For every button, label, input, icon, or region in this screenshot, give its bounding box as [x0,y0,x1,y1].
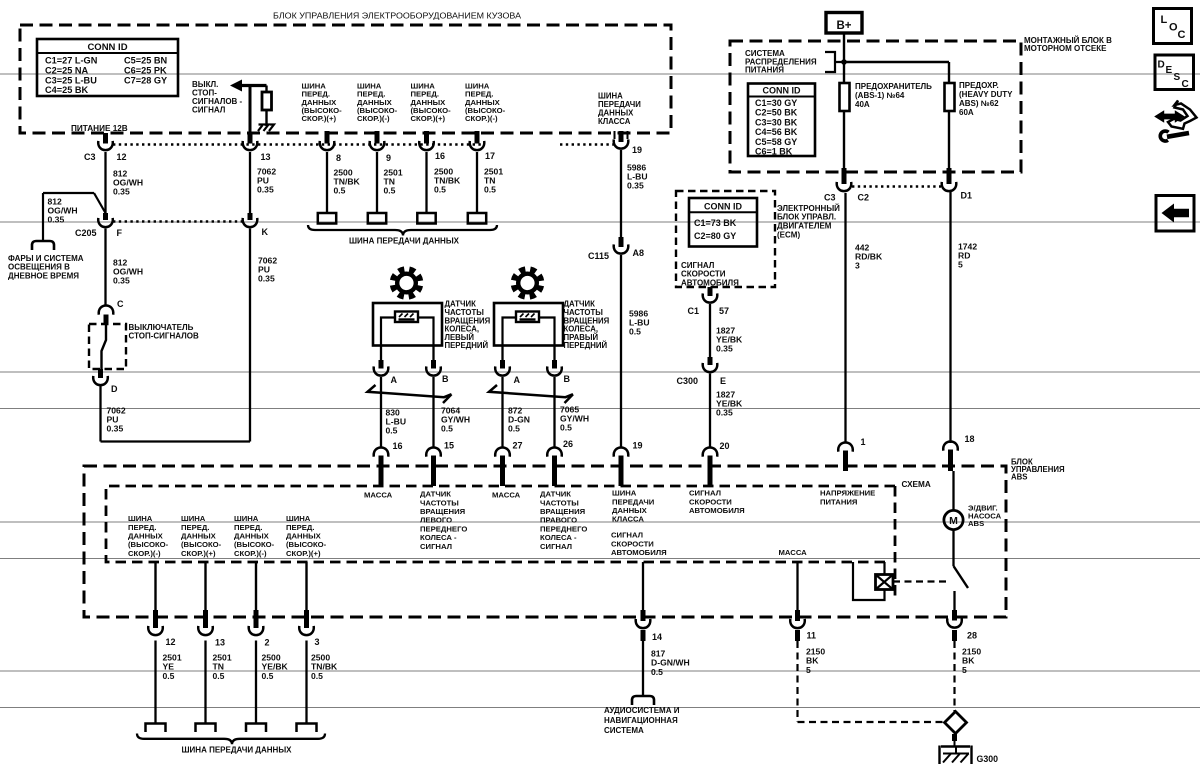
svg-text:ABS) №62: ABS) №62 [959,99,999,108]
svg-text:СХЕМА: СХЕМА [902,480,931,489]
svg-text:C4=56 BK: C4=56 BK [755,127,798,137]
svg-text:0.35: 0.35 [716,407,733,417]
svg-text:ЛЕВОГО: ЛЕВОГО [420,516,452,525]
svg-text:СКОРОСТИ: СКОРОСТИ [681,270,726,279]
svg-text:СКОРОСТИ: СКОРОСТИ [611,539,654,548]
svg-text:АВТОМОБИЛЯ: АВТОМОБИЛЯ [611,548,667,557]
svg-text:ШИНА ПЕРЕДАЧИ ДАННЫХ: ШИНА ПЕРЕДАЧИ ДАННЫХ [349,237,460,246]
svg-text:(ВЫСОКО-: (ВЫСОКО- [128,540,169,549]
svg-text:0.5: 0.5 [334,185,346,195]
svg-text:2: 2 [265,638,270,648]
svg-text:C3: C3 [824,193,836,203]
svg-text:M: M [949,515,958,527]
svg-text:КОЛЕСА -: КОЛЕСА - [420,533,457,542]
svg-text:(ВЫСОКО-: (ВЫСОКО- [234,540,275,549]
svg-text:C1=27 L-GN: C1=27 L-GN [45,56,98,66]
svg-text:B: B [442,374,449,384]
svg-text:0.5: 0.5 [163,671,175,681]
svg-text:0.5: 0.5 [508,423,520,433]
svg-text:18: 18 [965,434,975,444]
svg-text:ПЕРЕДНИЙ: ПЕРЕДНИЙ [564,341,608,350]
svg-text:КОЛЕСА -: КОЛЕСА - [540,533,577,542]
svg-text:D: D [1158,60,1165,71]
svg-text:60A: 60A [959,108,974,117]
svg-text:МАССА: МАССА [779,548,808,557]
svg-text:ШИНА: ШИНА [128,514,153,523]
svg-text:СКОР.)(+): СКОР.)(+) [286,549,321,558]
svg-text:C: C [117,299,124,309]
svg-text:0.35: 0.35 [257,184,274,194]
svg-text:МОТОРНОМ ОТСЕКЕ: МОТОРНОМ ОТСЕКЕ [1024,44,1107,53]
svg-text:C2: C2 [858,193,870,203]
svg-text:СИГНАЛ: СИГНАЛ [192,105,226,114]
svg-text:НАПРЯЖЕНИЕ: НАПРЯЖЕНИЕ [820,489,875,498]
svg-text:ВРАЩЕНИЯ: ВРАЩЕНИЯ [420,507,466,516]
svg-text:C205: C205 [75,228,97,238]
svg-text:ПРЕДОХРАНИТЕЛЬ: ПРЕДОХРАНИТЕЛЬ [855,82,932,91]
svg-text:1: 1 [861,437,866,447]
svg-text:28: 28 [967,631,977,641]
svg-text:C2=25 NA: C2=25 NA [45,65,89,75]
svg-text:C1: C1 [688,306,700,316]
svg-text:12: 12 [117,152,127,162]
svg-text:11: 11 [807,631,817,641]
svg-text:ПЕРЕДНИЙ: ПЕРЕДНИЙ [445,341,489,350]
svg-text:0.35: 0.35 [627,180,644,190]
svg-text:0.5: 0.5 [651,667,663,677]
svg-text:G300: G300 [977,754,999,764]
svg-text:40A: 40A [855,100,870,109]
svg-text:0.5: 0.5 [560,422,572,432]
svg-text:13: 13 [215,638,225,648]
svg-text:19: 19 [633,441,643,451]
svg-text:26: 26 [563,439,573,449]
svg-text:СИГНАЛ: СИГНАЛ [681,261,715,270]
svg-text:A: A [391,375,398,385]
svg-text:0.5: 0.5 [262,671,274,681]
svg-text:8: 8 [336,153,341,163]
svg-text:СИГНАЛ: СИГНАЛ [540,542,572,551]
svg-text:B: B [564,374,571,384]
svg-text:ДВИГАТЕЛЕМ: ДВИГАТЕЛЕМ [777,221,832,230]
svg-text:ДАННЫХ: ДАННЫХ [612,506,648,515]
svg-text:ЧАСТОТЫ: ЧАСТОТЫ [540,498,579,507]
svg-text:БЛОК УПРАВЛЕНИЯ ЭЛЕКТРООБОРУДО: БЛОК УПРАВЛЕНИЯ ЭЛЕКТРООБОРУДОВАНИЕМ КУЗ… [273,12,522,21]
svg-text:3: 3 [855,260,860,270]
svg-text:АВТОМОБИЛЯ: АВТОМОБИЛЯ [689,506,745,515]
svg-text:0.35: 0.35 [716,343,733,353]
svg-text:СКОР.)(-): СКОР.)(-) [234,549,267,558]
svg-text:ДАННЫХ: ДАННЫХ [128,532,164,541]
svg-text:МАССА: МАССА [492,491,521,500]
svg-text:0.35: 0.35 [113,275,130,285]
svg-text:0.5: 0.5 [629,326,641,336]
svg-text:СКОР.)(+): СКОР.)(+) [302,114,337,123]
svg-text:C2=50 BK: C2=50 BK [755,108,798,118]
svg-text:12: 12 [166,637,176,647]
svg-text:C6=25 PK: C6=25 PK [124,65,167,75]
svg-text:E: E [720,376,726,386]
svg-text:ABS: ABS [1011,473,1027,482]
svg-text:ПЕРЕД.: ПЕРЕД. [128,523,157,532]
svg-text:КЛАССА: КЛАССА [612,515,644,524]
svg-text:ШИНА ПЕРЕДАЧИ ДАННЫХ: ШИНА ПЕРЕДАЧИ ДАННЫХ [182,746,293,755]
svg-text:C6=1 BK: C6=1 BK [755,147,793,157]
svg-text:A8: A8 [633,248,645,258]
svg-text:СИГНАЛ: СИГНАЛ [420,542,452,551]
svg-text:ШИНА: ШИНА [286,514,311,523]
svg-text:ДАТЧИК: ДАТЧИК [540,490,571,499]
svg-text:ШИНА: ШИНА [181,514,206,523]
svg-text:C3: C3 [84,152,96,162]
svg-text:57: 57 [719,306,729,316]
svg-text:C300: C300 [677,376,699,386]
svg-text:ПЕРЕД.: ПЕРЕД. [234,523,263,532]
svg-text:C5=25 BN: C5=25 BN [124,56,168,66]
svg-text:CONN ID: CONN ID [704,202,743,212]
svg-text:C2=80 GY: C2=80 GY [694,231,736,241]
svg-text:ВРАЩЕНИЯ: ВРАЩЕНИЯ [540,507,586,516]
svg-text:14: 14 [652,632,662,642]
svg-text:C: C [1178,29,1186,41]
svg-text:СИГНАЛ: СИГНАЛ [689,489,721,498]
svg-text:C7=28 GY: C7=28 GY [124,75,167,85]
svg-text:S: S [1174,72,1181,83]
svg-text:ПИТАНИЯ: ПИТАНИЯ [745,66,784,75]
svg-text:9: 9 [386,153,391,163]
svg-text:27: 27 [513,441,523,451]
svg-text:СКОР.)(+): СКОР.)(+) [411,114,446,123]
svg-text:16: 16 [393,441,403,451]
svg-text:ЭЛЕКТРОННЫЙ: ЭЛЕКТРОННЫЙ [777,204,840,213]
svg-text:CONN ID: CONN ID [87,42,127,53]
svg-text:C: C [1182,79,1189,90]
svg-text:(ECM): (ECM) [777,230,800,239]
svg-text:СКОР.)(-): СКОР.)(-) [128,549,161,558]
svg-text:ПРЕДОХР.: ПРЕДОХР. [959,81,999,90]
svg-text:ЧАСТОТЫ: ЧАСТОТЫ [420,498,459,507]
svg-text:C1=30 GY: C1=30 GY [755,98,797,108]
svg-text:B+: B+ [836,20,851,32]
svg-text:C4=25 BK: C4=25 BK [45,85,89,95]
svg-text:ПЕРЕДАЧИ: ПЕРЕДАЧИ [612,497,655,506]
svg-text:17: 17 [485,151,495,161]
svg-text:C1=73 BK: C1=73 BK [694,218,737,228]
svg-text:ДАТЧИК: ДАТЧИК [420,490,451,499]
svg-text:0.5: 0.5 [434,184,446,194]
svg-text:(ВЫСОКО-: (ВЫСОКО- [286,540,327,549]
svg-text:D1: D1 [961,191,973,201]
svg-text:ФАРЫ И СИСТЕМА: ФАРЫ И СИСТЕМА [8,254,84,263]
svg-text:A: A [514,375,521,385]
svg-text:D: D [111,384,118,394]
svg-text:19: 19 [632,145,642,155]
svg-text:5: 5 [962,665,967,675]
svg-text:ОСВЕЩЕНИЯ В: ОСВЕЩЕНИЯ В [8,263,70,272]
svg-text:НАВИГАЦИОННАЯ: НАВИГАЦИОННАЯ [604,716,678,725]
svg-text:20: 20 [720,441,730,451]
svg-text:K: K [262,227,269,237]
svg-text:СИСТЕМА: СИСТЕМА [604,726,644,735]
svg-text:CONN ID: CONN ID [763,86,802,96]
svg-text:ДАННЫХ: ДАННЫХ [181,532,217,541]
svg-text:0.5: 0.5 [441,423,453,433]
svg-text:ШИНА: ШИНА [612,489,637,498]
svg-text:ДАННЫХ: ДАННЫХ [234,532,270,541]
svg-text:C3=30 BK: C3=30 BK [755,117,798,127]
svg-text:(HEAVY DUTY: (HEAVY DUTY [959,90,1013,99]
svg-text:(ABS-1) №64: (ABS-1) №64 [855,91,905,100]
svg-text:0.35: 0.35 [107,423,124,433]
svg-text:0.5: 0.5 [311,671,323,681]
svg-text:СИГНАЛ: СИГНАЛ [611,531,643,540]
svg-text:ПЕРЕД.: ПЕРЕД. [181,523,210,532]
svg-text:F: F [117,228,123,238]
svg-text:ДНЕВНОЕ ВРЕМЯ: ДНЕВНОЕ ВРЕМЯ [8,271,79,280]
svg-text:СКОР.)(+): СКОР.)(+) [181,549,216,558]
svg-text:C5=58 GY: C5=58 GY [755,137,797,147]
svg-text:13: 13 [261,152,271,162]
svg-text:ПИТАНИЕ 12В: ПИТАНИЕ 12В [71,124,128,133]
svg-text:0.5: 0.5 [386,425,398,435]
svg-text:3: 3 [315,637,320,647]
svg-text:МАССА: МАССА [364,491,393,500]
svg-text:(ВЫСОКО-: (ВЫСОКО- [181,540,222,549]
svg-text:C115: C115 [588,251,609,261]
svg-text:0.5: 0.5 [213,671,225,681]
svg-text:5: 5 [806,665,811,675]
svg-text:ПЕРЕДНЕГО: ПЕРЕДНЕГО [420,524,467,533]
svg-text:СКОР.)(-): СКОР.)(-) [465,114,498,123]
svg-text:ПИТАНИЯ: ПИТАНИЯ [820,497,858,506]
svg-text:СКОРОСТИ: СКОРОСТИ [689,497,732,506]
svg-text:ПЕРЕДНЕГО: ПЕРЕДНЕГО [540,524,587,533]
svg-text:16: 16 [435,151,445,161]
svg-text:АВТОМОБИЛЯ: АВТОМОБИЛЯ [681,278,739,287]
svg-text:15: 15 [444,441,454,451]
svg-text:L: L [1161,14,1168,26]
svg-text:0.35: 0.35 [48,214,65,224]
svg-text:0.35: 0.35 [113,186,130,196]
svg-text:ПЕРЕД.: ПЕРЕД. [286,523,315,532]
svg-text:ПРАВОГО: ПРАВОГО [540,516,577,525]
svg-text:0.5: 0.5 [384,185,396,195]
svg-text:0.5: 0.5 [484,184,496,194]
svg-text:5: 5 [958,259,963,269]
svg-text:ДАННЫХ: ДАННЫХ [286,532,322,541]
svg-text:C3=25 L-BU: C3=25 L-BU [45,75,97,85]
svg-text:СКОР.)(-): СКОР.)(-) [357,114,390,123]
svg-text:КЛАССА: КЛАССА [598,117,631,126]
svg-text:ABS: ABS [968,519,984,528]
svg-text:СТОП-СИГНАЛОВ: СТОП-СИГНАЛОВ [129,331,199,340]
svg-text:0.35: 0.35 [258,273,275,283]
svg-text:E: E [1166,65,1173,76]
svg-text:АУДИОСИСТЕМА И: АУДИОСИСТЕМА И [604,706,680,715]
svg-text:ШИНА: ШИНА [234,514,259,523]
svg-text:БЛОК УПРАВЛ.: БЛОК УПРАВЛ. [777,213,836,222]
